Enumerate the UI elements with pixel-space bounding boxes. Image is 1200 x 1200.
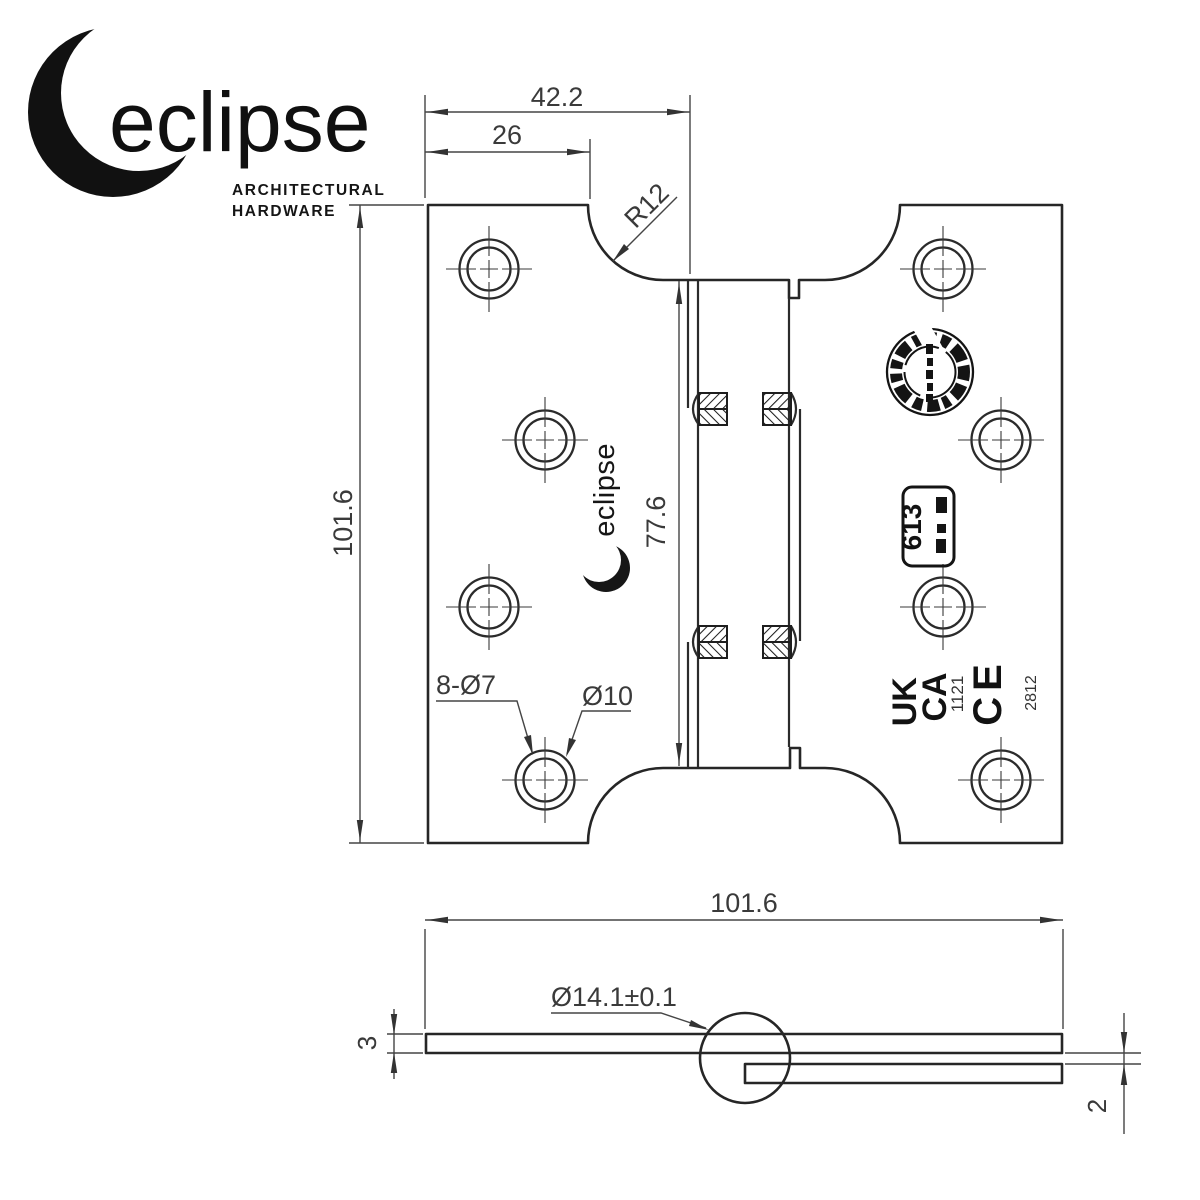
leaf-eclipse-stamp: eclipse	[577, 443, 633, 593]
washer-bottom-right	[763, 626, 791, 642]
side-knuckle-circle	[700, 1013, 790, 1103]
hole	[446, 226, 532, 312]
technical-drawing: 613 UK CA 1121 CE 2812 42.2	[0, 0, 1200, 1200]
page: { "brand": { "logo_text": "eclipse", "ta…	[0, 0, 1200, 1200]
washer-top-left-lower	[699, 409, 727, 425]
hole	[958, 737, 1044, 823]
dim-gap-2: 2	[1082, 1099, 1112, 1113]
grade-stamp-613: 613	[896, 487, 954, 566]
hole	[958, 397, 1044, 483]
dim-thickness-3: 3	[352, 1036, 382, 1050]
hole	[900, 226, 986, 312]
ce-mark: CE 2812	[966, 658, 1040, 726]
certification-ring-stamp	[887, 326, 973, 415]
dim-r12: R12	[619, 178, 675, 234]
side-leaf-top	[426, 1034, 1062, 1053]
callout-d10: Ø10	[582, 681, 633, 711]
ce-body-number: 2812	[1023, 675, 1040, 711]
dim-101-6-side: 101.6	[710, 888, 778, 918]
ukca-mark: UK CA 1121	[886, 668, 967, 727]
side-leaf-bottom	[745, 1064, 1062, 1083]
washer-top-right	[763, 393, 791, 409]
hinge-outline	[428, 205, 1062, 843]
dim-42-2: 42.2	[531, 82, 584, 112]
knuckle-lines	[688, 281, 800, 768]
washer-bottom-right-lower	[763, 642, 791, 658]
ukca-body-number: 1121	[948, 676, 967, 713]
side-dimensions: 101.6 Ø14.1±0.1 3 2	[352, 888, 1141, 1134]
washer-top-left	[699, 393, 727, 409]
hinge-plan-view: 613 UK CA 1121 CE 2812	[428, 205, 1062, 843]
dim-knuckle-diameter: Ø14.1±0.1	[551, 982, 677, 1012]
leaf-eclipse-text: eclipse	[589, 443, 622, 537]
washer-bottom-left	[699, 626, 727, 642]
hole	[502, 737, 588, 823]
hole	[900, 564, 986, 650]
hinge-side-view	[426, 1013, 1062, 1103]
washer-bottom-left-lower	[699, 642, 727, 658]
svg-text:UK CA: UK CA	[886, 668, 954, 727]
ce-mark-text: CE	[966, 658, 1010, 726]
grade-stamp-microtext	[936, 497, 947, 553]
dim-26: 26	[492, 120, 522, 150]
ring-stamp-microtext	[926, 344, 933, 402]
hole	[446, 564, 532, 650]
washer-top-right-lower	[763, 409, 791, 425]
callout-8-d7: 8-Ø7	[436, 670, 496, 700]
bearing-washers	[699, 393, 791, 658]
grade-stamp-text: 613	[896, 504, 927, 551]
hole	[502, 397, 588, 483]
plan-dimensions: 42.2 26 R12 101.6 77.6 8-Ø7 Ø10	[328, 82, 690, 843]
dim-101-6-height: 101.6	[328, 489, 358, 557]
leaf-eclipse-crescent-icon	[578, 542, 632, 593]
dim-77-6: 77.6	[641, 496, 671, 549]
